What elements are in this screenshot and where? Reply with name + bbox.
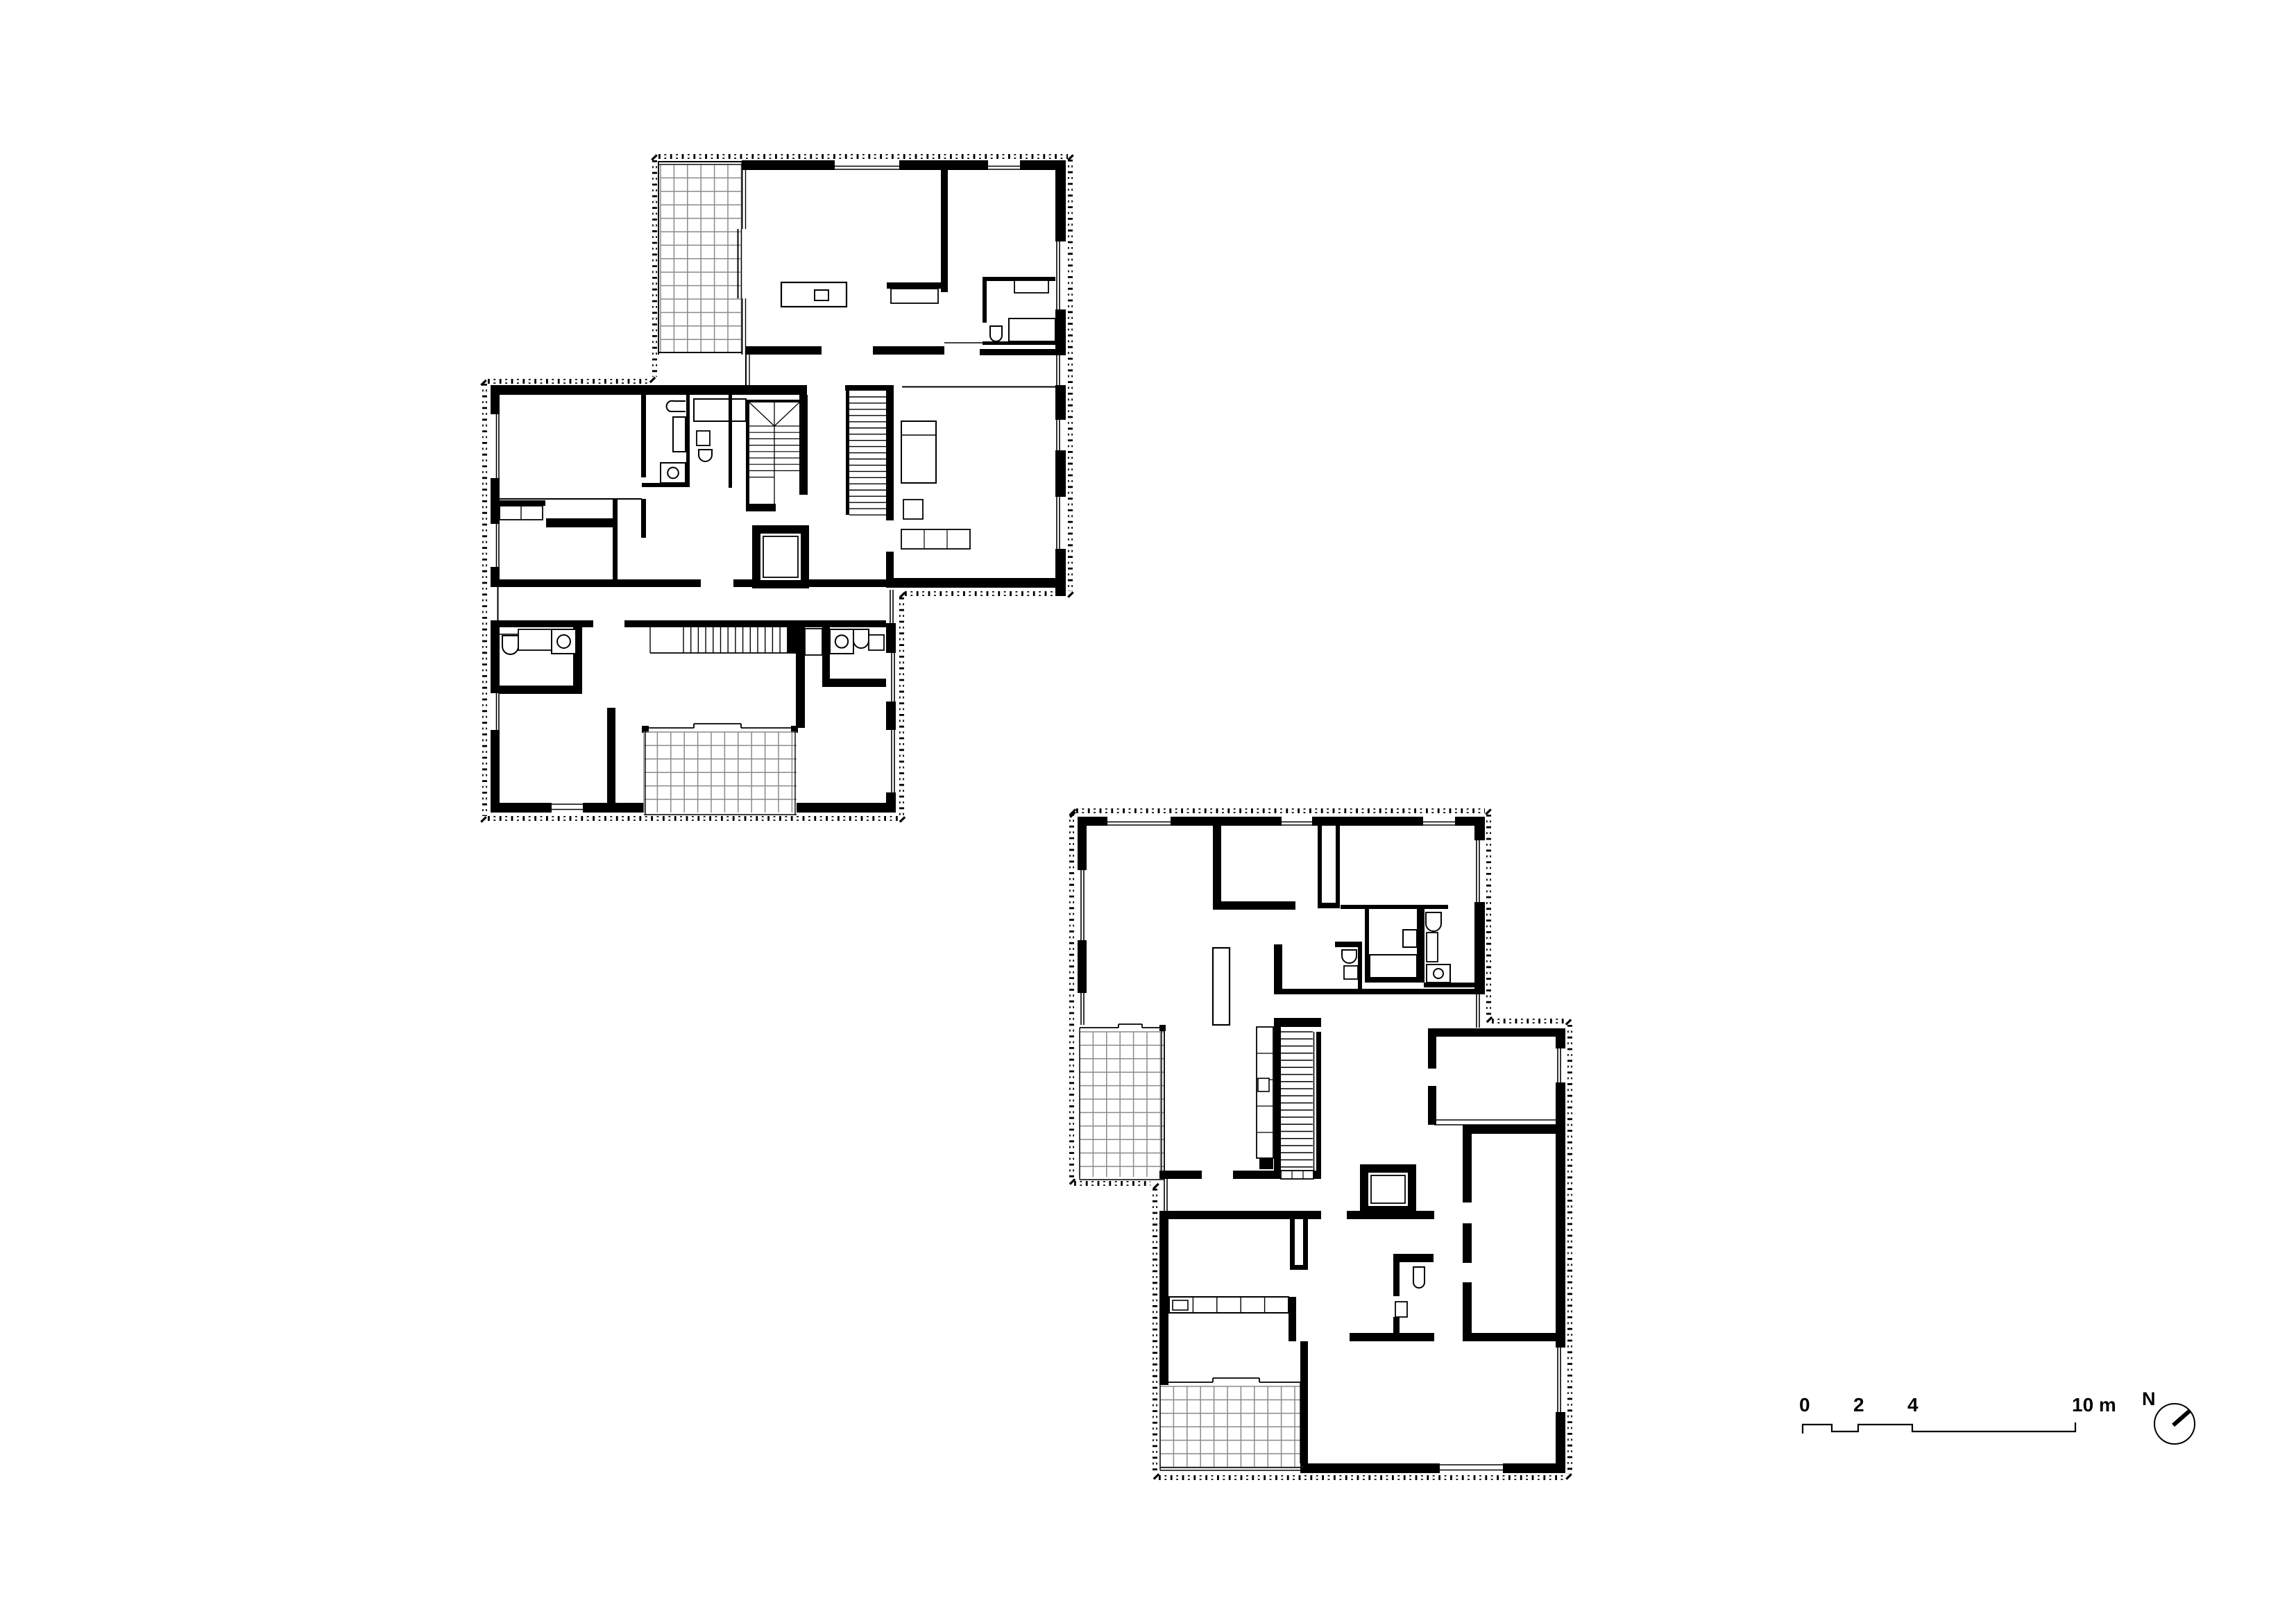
svg-text:0: 0 — [1799, 1394, 1810, 1416]
svg-text:2: 2 — [1853, 1394, 1864, 1416]
svg-text:10 m: 10 m — [2072, 1394, 2116, 1416]
svg-text:4: 4 — [1907, 1394, 1919, 1416]
svg-text:N: N — [2142, 1388, 2156, 1409]
